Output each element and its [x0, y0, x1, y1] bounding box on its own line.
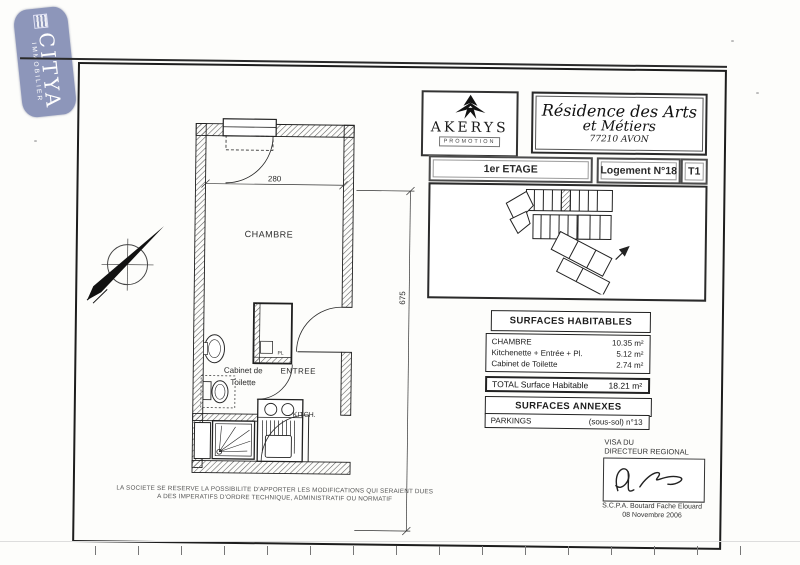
plan-sheet-frame: PL [72, 62, 727, 550]
surface-total-row: TOTAL Surface Habitable 18.21 m² [485, 376, 650, 394]
placard-closet: PL [253, 303, 292, 363]
site-plan-drawing [429, 184, 701, 295]
dimension-length-label: 675 [398, 291, 407, 305]
residence-city: 77210 AVON [589, 134, 648, 146]
surface-label: CHAMBRE [492, 336, 532, 347]
shower [194, 420, 254, 459]
unit-type-box: T1 [681, 158, 708, 184]
disclaimer-text: LA SOCIETE SE RESERVE LA POSSIBILITE D'A… [115, 484, 435, 504]
scan-speck [756, 92, 759, 94]
surfaces-habitables-table: CHAMBRE 10.35 m² Kitchenette + Entrée + … [485, 333, 650, 374]
room-label-chambre: CHAMBRE [245, 229, 294, 240]
surface-row-cabinet: Cabinet de Toilette 2.74 m² [486, 358, 649, 371]
surface-total-value: 18.21 m² [608, 381, 642, 391]
surfaces-annexes-title: SURFACES ANNEXES [515, 400, 621, 412]
room-label-entree: ENTREE [280, 366, 316, 375]
signatory-name: S.C.P.A. Boutard Fache Elouard [580, 501, 725, 512]
room-label-kitch: KITCH. [293, 412, 316, 419]
floor-label: 1er ETAGE [484, 163, 538, 176]
scan-edge-line [0, 541, 800, 542]
citya-logo-badge: CITYA IMMOBILIER [13, 5, 78, 118]
visa-label: VISA DU DIRECTEUR REGIONAL [604, 437, 724, 456]
kitchenette-unit [257, 399, 303, 462]
surface-value: 5.12 m² [616, 349, 643, 360]
residence-name-line2: et Métiers [583, 119, 656, 135]
akerys-star-icon [447, 93, 493, 122]
surface-value: 2.74 m² [616, 360, 643, 371]
scanned-floorplan-page: CITYA IMMOBILIER [0, 0, 800, 565]
akerys-tagline: PROMOTION [439, 136, 501, 147]
floor-label-box: 1er ETAGE [429, 155, 593, 183]
visa-date: 08 Novembre 2006 [579, 511, 724, 520]
surface-total-label: TOTAL Surface Habitable [492, 379, 588, 390]
visa-line2: DIRECTEUR REGIONAL [604, 446, 724, 456]
room-label-cabinet-line1: Cabinet de [224, 366, 263, 375]
room-label-cabinet-line2: Toilette [230, 378, 256, 387]
citya-immobilier-logo: CITYA IMMOBILIER [10, 3, 79, 120]
scan-speck [34, 140, 37, 142]
site-plan-highlighted-unit [561, 190, 570, 211]
site-plan-box [427, 182, 707, 301]
north-arrow-compass [79, 214, 175, 310]
surfaces-habitables-header: SURFACES HABITABLES [491, 310, 651, 333]
akerys-logo-box: AKERYS PROMOTION [421, 90, 519, 157]
surface-value: 10.35 m² [612, 338, 644, 349]
residence-title-box: Résidence des Arts et Métiers 77210 AVON [531, 92, 708, 156]
apartment-floorplan-drawing: PL [174, 100, 419, 538]
dimension-length [352, 186, 414, 535]
signature-box [603, 457, 706, 502]
parking-row: PARKINGS (sous-sol) n°13 [485, 413, 650, 430]
parking-value: (sous-sol) n°13 [589, 417, 643, 427]
unit-type-label: T1 [688, 165, 700, 177]
placard-label: PL [277, 350, 283, 356]
surface-label: Cabinet de Toilette [491, 358, 557, 370]
unit-number-label: Logement N°18 [600, 164, 677, 177]
parking-label: PARKINGS [491, 416, 532, 425]
surfaces-habitables-title: SURFACES HABITABLES [510, 315, 633, 327]
signature-scribble [604, 458, 700, 497]
scan-speck [731, 40, 734, 42]
citya-crest-icon [33, 13, 48, 28]
akerys-brand-name: AKERYS [431, 120, 509, 135]
dimension-width-label: 280 [268, 174, 282, 183]
unit-number-box: Logement N°18 [597, 157, 681, 184]
residence-name-line1: Résidence des Arts [542, 101, 697, 120]
